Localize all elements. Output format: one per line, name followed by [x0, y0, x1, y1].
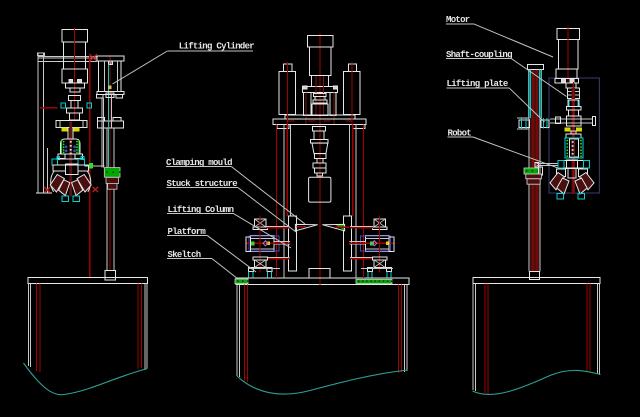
svg-text:Lifting Cylinder: Lifting Cylinder	[179, 42, 255, 52]
